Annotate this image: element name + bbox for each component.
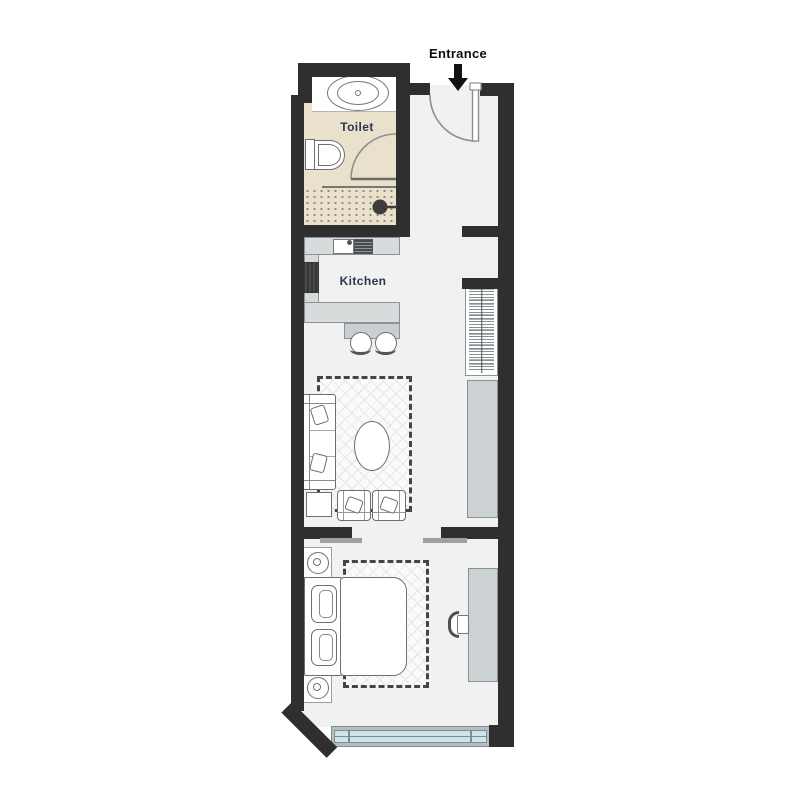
kitchen-faucet-icon [347,240,352,245]
sideboard-icon [467,380,498,518]
bed-pillow-icon [311,629,337,666]
bed-duvet-icon [340,577,407,676]
wardrobe-icon [465,283,498,376]
lamp-icon [307,552,329,574]
throw-pillow-icon [309,452,328,473]
armchair-back [373,512,405,520]
lamp-bulb [313,683,321,691]
armchair-icon [337,490,371,521]
sofa-arm [303,480,335,489]
lamp-bulb [313,558,321,566]
cushion-divider [310,430,335,431]
desk-icon [468,568,498,682]
kitchen-island [304,302,400,323]
bed-pillow-icon [311,585,337,623]
armchair-back [338,512,370,520]
nightstand-icon [303,672,332,703]
entrance-label: Entrance [416,46,500,61]
entrance-arrow-head [448,78,468,91]
entrance-left-wall [396,83,430,95]
left-wall [291,95,304,711]
sink-drain [355,90,361,96]
window-rail [334,736,487,737]
floor-plan: Toilet Kitchen [0,0,800,800]
shower-floor [304,188,396,225]
armchair-icon [372,490,406,521]
wardrobe-partition-stub [462,278,499,289]
bar-stool-icon [375,332,397,354]
side-table-icon [306,492,332,517]
throw-pillow-icon [310,404,330,426]
hall-partition-stub [462,226,499,237]
coffee-table-icon [354,421,390,471]
stool-back [350,344,371,355]
oven-icon [304,262,319,293]
lamp-icon [307,677,329,699]
toilet-room-label: Toilet [317,120,397,134]
toilet-top-wall [310,63,410,77]
nightstand-icon [303,547,332,578]
sofa-arm [303,395,335,404]
kitchen-room-label: Kitchen [323,274,403,288]
desk-chair-icon [457,615,469,634]
bed-pillow-inner [319,634,333,661]
bar-stool-icon [350,332,372,354]
toilet-seat [318,144,341,166]
sofa-icon [302,394,336,490]
stool-back [375,344,396,355]
sliding-door-panel [423,538,467,543]
sliding-door-panel [320,538,362,543]
bottom-right-wall [489,725,514,747]
bed-pillow-inner [319,590,333,618]
cooktop-icon [354,239,373,254]
sofa-back [303,395,310,489]
entrance-arrow-icon [454,64,462,78]
wardrobe-rail [481,286,483,373]
right-wall [498,83,514,730]
toilet-bottom-wall [298,225,410,237]
